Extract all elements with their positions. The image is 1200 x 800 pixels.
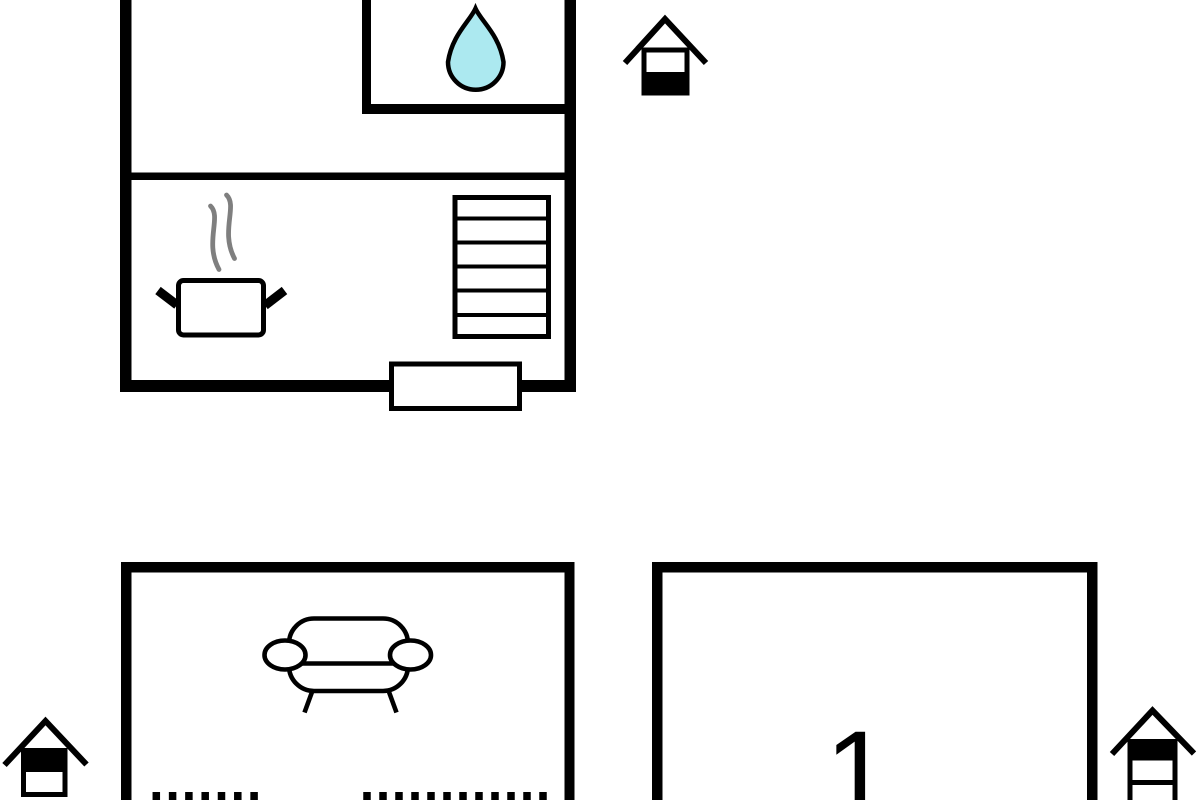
- svg-text:1: 1: [825, 707, 891, 800]
